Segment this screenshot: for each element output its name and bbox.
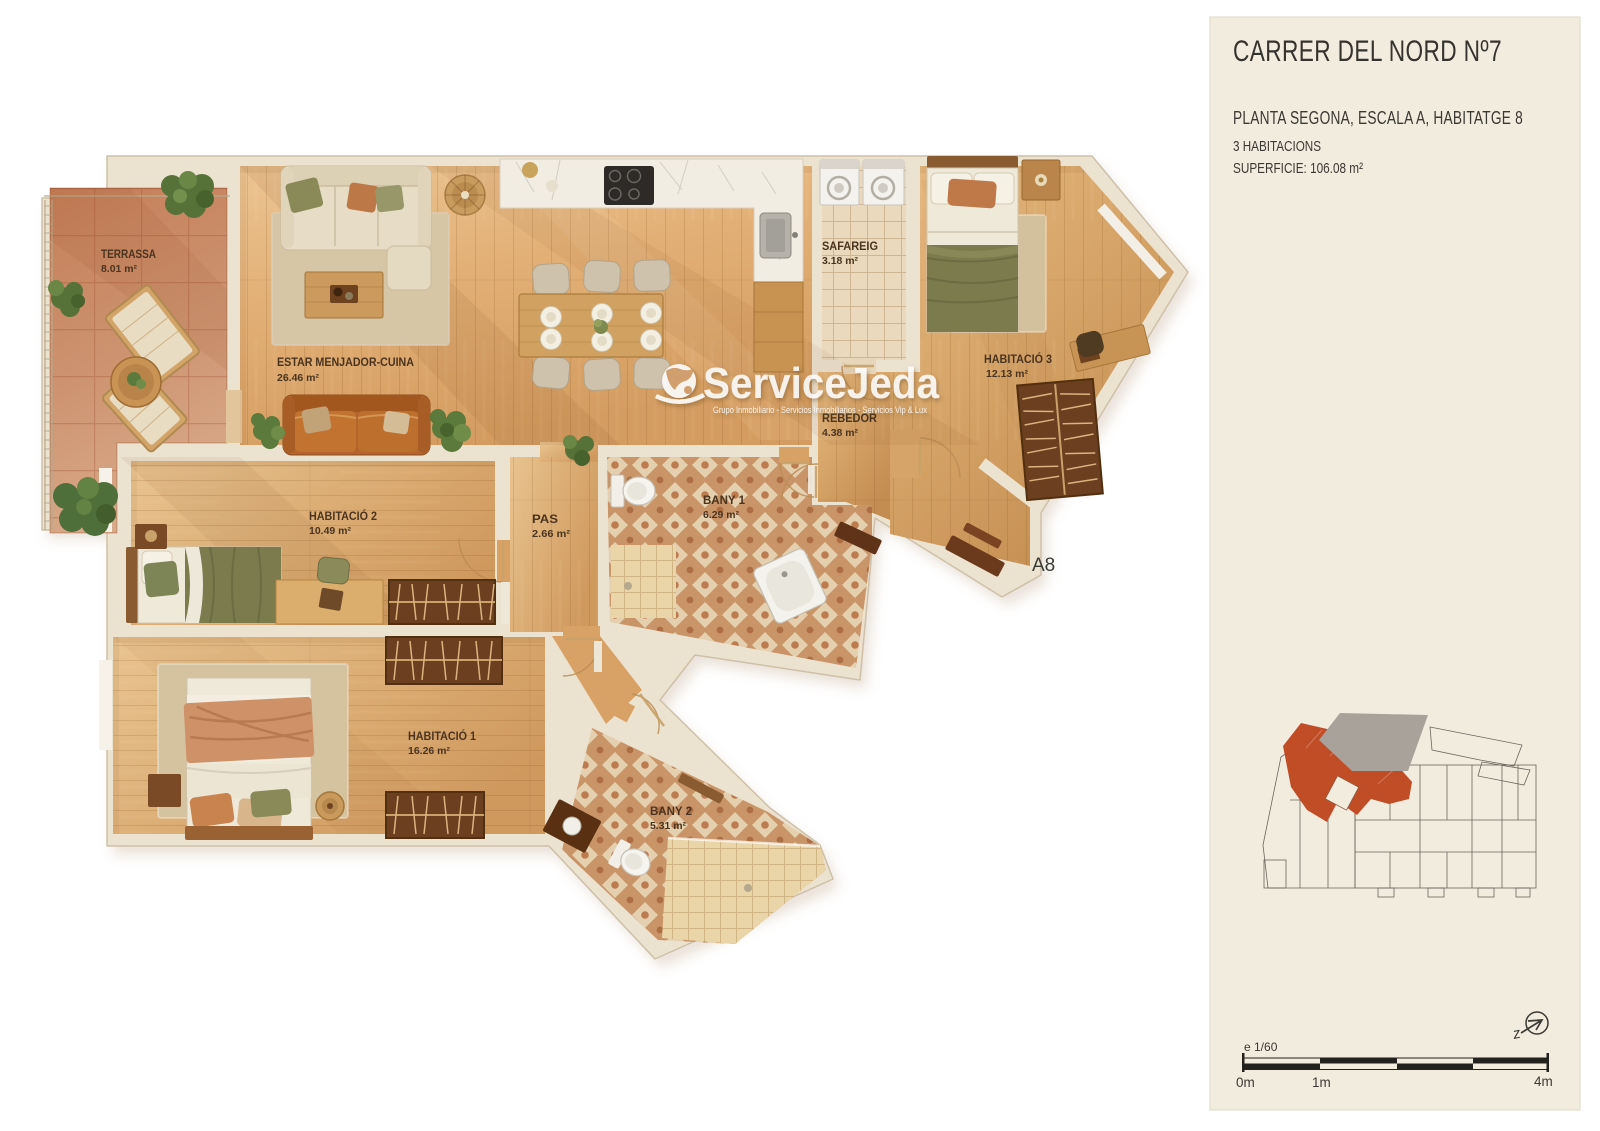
svg-text:4m: 4m — [1534, 1074, 1553, 1089]
svg-text:BANY 2: BANY 2 — [650, 804, 692, 818]
svg-text:1m: 1m — [1312, 1075, 1331, 1090]
svg-text:Grupo Inmobiliario - Servicios: Grupo Inmobiliario - Servicios Inmobilia… — [713, 405, 927, 416]
svg-text:HABITACIÓ 1: HABITACIÓ 1 — [408, 728, 476, 743]
svg-text:TERRASSA: TERRASSA — [101, 247, 156, 261]
svg-text:HABITACIÓ 2: HABITACIÓ 2 — [309, 508, 377, 523]
svg-text:A8: A8 — [1032, 555, 1055, 576]
svg-text:3.18 m²: 3.18 m² — [822, 256, 859, 267]
svg-text:10.49 m²: 10.49 m² — [309, 526, 352, 537]
svg-text:6.29 m²: 6.29 m² — [703, 510, 740, 521]
svg-text:PAS: PAS — [532, 512, 558, 526]
svg-text:SAFAREIG: SAFAREIG — [822, 239, 878, 253]
svg-text:26.46 m²: 26.46 m² — [277, 373, 320, 384]
svg-text:e 1/60: e 1/60 — [1244, 1040, 1278, 1054]
svg-text:ServiceJeda: ServiceJeda — [703, 359, 939, 408]
svg-text:4.38 m²: 4.38 m² — [822, 428, 859, 439]
svg-text:3 HABITACIONS: 3 HABITACIONS — [1233, 138, 1321, 155]
svg-text:0m: 0m — [1236, 1075, 1255, 1090]
svg-text:ESTAR MENJADOR-CUINA: ESTAR MENJADOR-CUINA — [277, 355, 414, 369]
svg-text:8.01 m²: 8.01 m² — [101, 264, 138, 275]
svg-text:5.31 m²: 5.31 m² — [650, 821, 687, 832]
svg-text:16.26 m²: 16.26 m² — [408, 746, 451, 757]
svg-text:CARRER DEL NORD Nº7: CARRER DEL NORD Nº7 — [1233, 35, 1502, 68]
svg-text:SUPERFICIE: 106.08 m²: SUPERFICIE: 106.08 m² — [1233, 160, 1363, 177]
svg-text:2.66 m²: 2.66 m² — [532, 529, 571, 540]
svg-text:HABITACIÓ 3: HABITACIÓ 3 — [984, 351, 1052, 366]
svg-text:PLANTA SEGONA, ESCALA A, HABIT: PLANTA SEGONA, ESCALA A, HABITATGE 8 — [1233, 108, 1523, 128]
svg-text:12.13 m²: 12.13 m² — [986, 369, 1029, 380]
svg-text:BANY 1: BANY 1 — [703, 493, 745, 507]
